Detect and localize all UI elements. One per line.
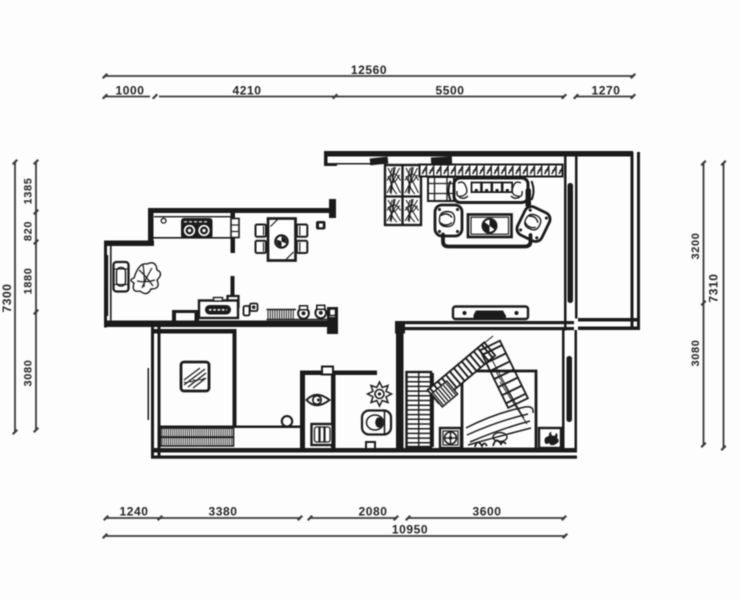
svg-text:7300: 7300	[0, 283, 14, 312]
svg-text:1000: 1000	[115, 84, 144, 98]
svg-text:3200: 3200	[690, 233, 702, 260]
svg-text:3080: 3080	[690, 340, 702, 367]
svg-text:12560: 12560	[351, 63, 387, 77]
svg-text:10950: 10950	[392, 523, 428, 537]
svg-text:5500: 5500	[435, 84, 464, 98]
svg-text:1880: 1880	[23, 268, 35, 295]
svg-text:2080: 2080	[358, 505, 387, 519]
svg-text:1240: 1240	[119, 505, 148, 519]
svg-text:820: 820	[23, 221, 35, 241]
svg-text:4210: 4210	[232, 84, 261, 98]
svg-text:3080: 3080	[23, 360, 35, 387]
svg-text:7310: 7310	[707, 273, 721, 302]
svg-text:1385: 1385	[23, 178, 35, 205]
svg-text:1270: 1270	[591, 84, 620, 98]
svg-text:3380: 3380	[208, 505, 237, 519]
svg-text:3600: 3600	[472, 505, 501, 519]
